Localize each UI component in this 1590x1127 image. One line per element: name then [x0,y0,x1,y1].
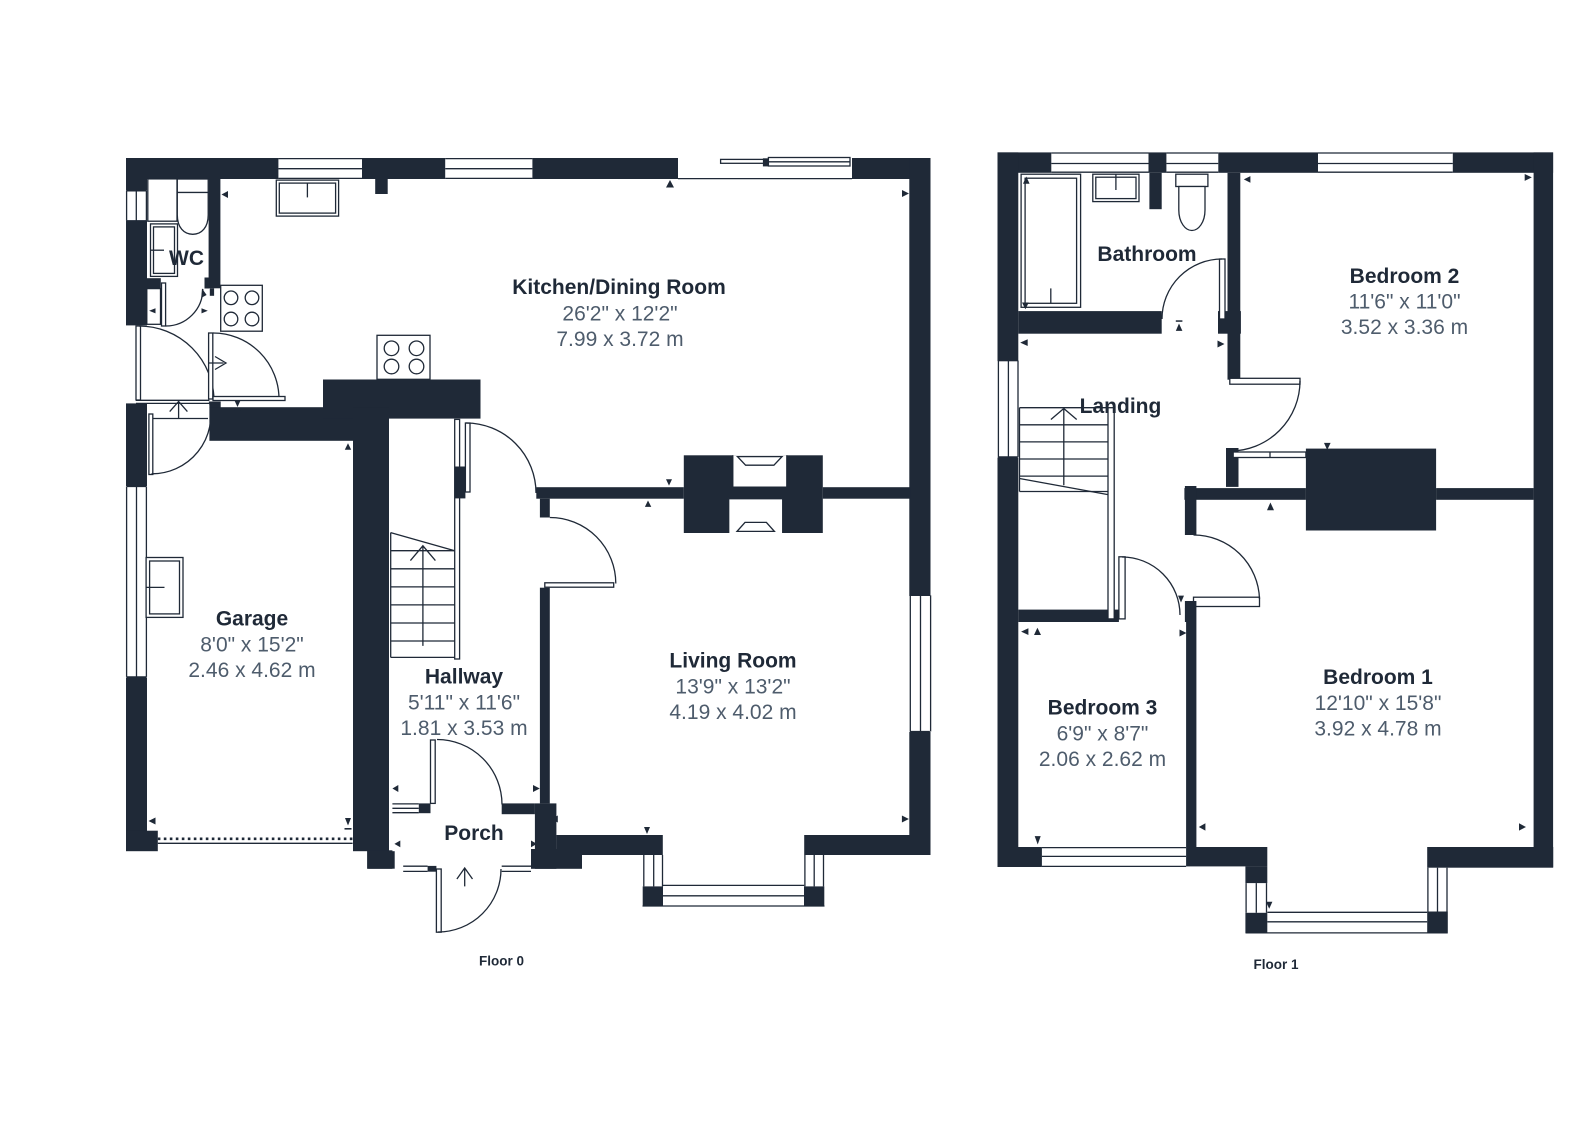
svg-text:1.81 x 3.53 m: 1.81 x 3.53 m [400,717,527,740]
svg-text:Bedroom 2: Bedroom 2 [1350,265,1460,288]
svg-text:Garage: Garage [216,608,288,631]
svg-text:Landing: Landing [1080,395,1162,418]
svg-text:5'11" x 11'6": 5'11" x 11'6" [408,692,520,715]
svg-text:Hallway: Hallway [425,666,504,689]
svg-text:Floor 1: Floor 1 [1253,957,1298,972]
svg-text:2.46 x 4.62 m: 2.46 x 4.62 m [188,659,315,682]
svg-text:Bedroom 1: Bedroom 1 [1323,666,1433,689]
svg-text:Living Room: Living Room [669,650,796,673]
svg-text:4.19 x 4.02 m: 4.19 x 4.02 m [669,701,796,724]
svg-text:WC: WC [169,247,204,270]
svg-text:Floor 0: Floor 0 [479,954,524,969]
svg-text:Bathroom: Bathroom [1097,243,1196,266]
svg-text:12'10" x 15'8": 12'10" x 15'8" [1315,692,1442,715]
svg-text:7.99 x 3.72 m: 7.99 x 3.72 m [556,328,683,351]
svg-text:11'6" x 11'0": 11'6" x 11'0" [1348,291,1460,314]
svg-text:8'0" x 15'2": 8'0" x 15'2" [200,634,304,657]
svg-text:6'9" x 8'7": 6'9" x 8'7" [1057,723,1149,746]
svg-text:3.92 x 4.78 m: 3.92 x 4.78 m [1314,718,1441,741]
svg-text:13'9" x 13'2": 13'9" x 13'2" [675,676,790,699]
svg-text:Bedroom 3: Bedroom 3 [1048,697,1158,720]
svg-text:Porch: Porch [444,822,504,845]
svg-text:2.06 x 2.62 m: 2.06 x 2.62 m [1039,748,1166,771]
svg-text:3.52 x 3.36 m: 3.52 x 3.36 m [1341,316,1468,339]
svg-text:26'2" x 12'2": 26'2" x 12'2" [562,303,677,326]
svg-text:Kitchen/Dining Room: Kitchen/Dining Room [512,276,726,299]
